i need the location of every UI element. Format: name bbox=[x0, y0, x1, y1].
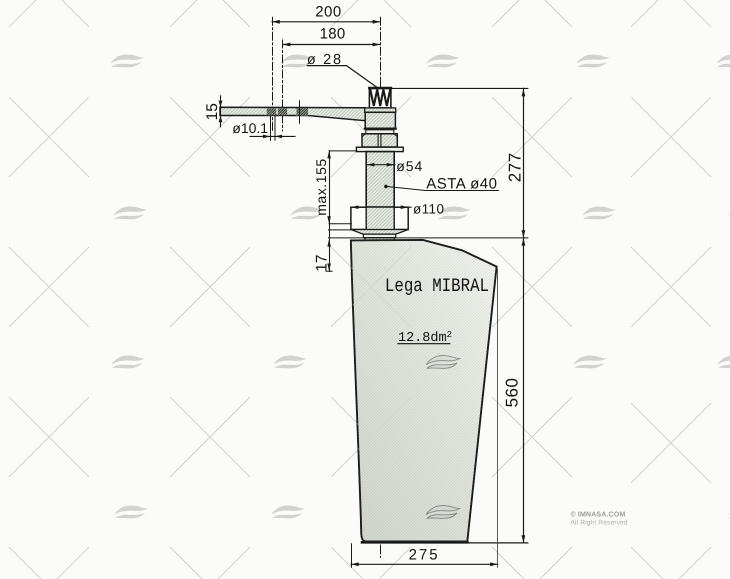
svg-text:ø110: ø110 bbox=[413, 201, 444, 216]
svg-text:17: 17 bbox=[314, 255, 331, 272]
svg-text:277: 277 bbox=[506, 152, 525, 182]
svg-text:Lega MIBRAL: Lega MIBRAL bbox=[385, 275, 489, 297]
svg-text:ø54: ø54 bbox=[396, 158, 423, 174]
svg-text:15: 15 bbox=[204, 103, 221, 120]
svg-text:180: 180 bbox=[320, 26, 346, 43]
svg-text:All Right Reserved: All Right Reserved bbox=[571, 520, 628, 527]
svg-text:max.155: max.155 bbox=[313, 158, 329, 216]
svg-text:275: 275 bbox=[409, 547, 440, 564]
svg-text:ø 28: ø 28 bbox=[307, 52, 343, 68]
svg-text:200: 200 bbox=[315, 3, 342, 20]
svg-text:ø10.1: ø10.1 bbox=[232, 120, 268, 136]
svg-text:560: 560 bbox=[503, 378, 522, 408]
svg-text:© IMNASA.COM: © IMNASA.COM bbox=[571, 511, 626, 519]
svg-text:ASTA ø40: ASTA ø40 bbox=[426, 175, 497, 192]
